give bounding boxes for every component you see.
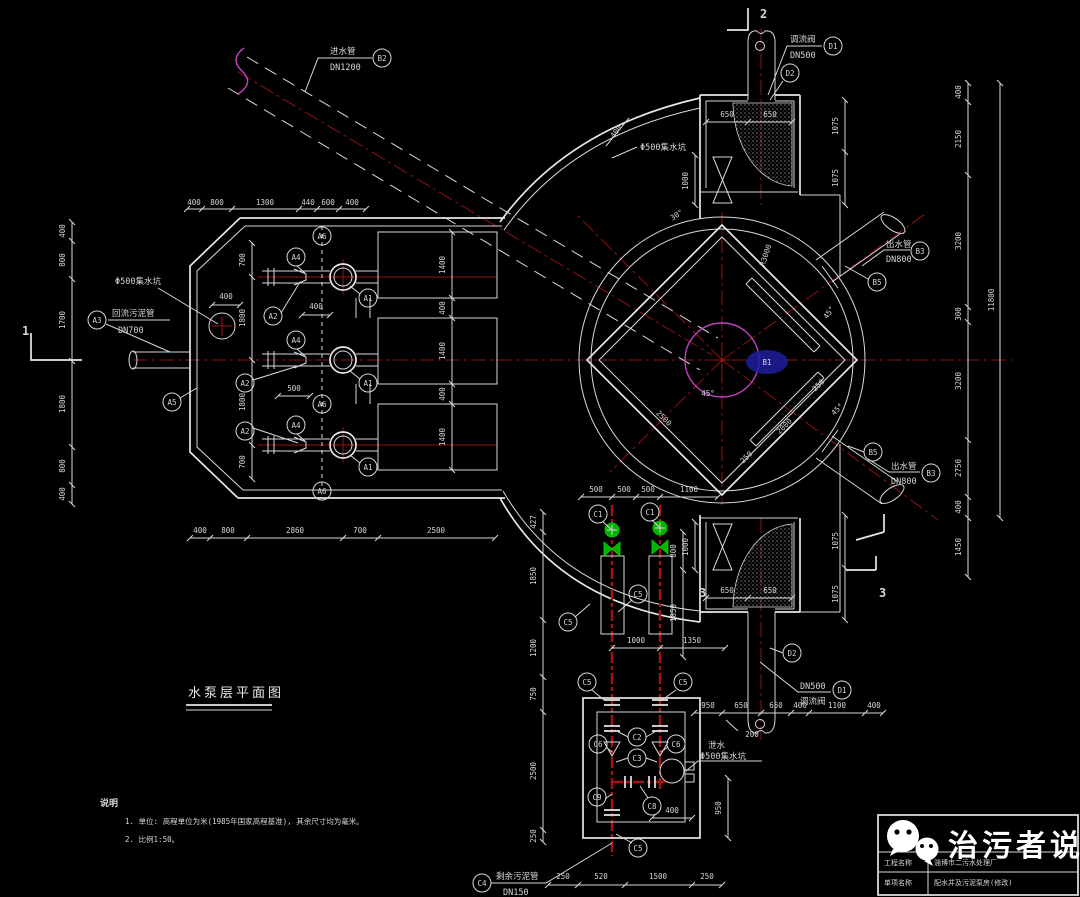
balloon-c1: C1 [589,505,607,523]
dim-label: 2860 [286,526,305,535]
svg-text:C5: C5 [678,678,687,687]
dim-label: 650 [763,110,777,119]
dim-label: 1350 [683,636,702,645]
balloon-a2: A2 [264,307,282,325]
svg-text:A2: A2 [240,379,249,388]
balloon-a2: A2 [236,374,254,392]
inlet-dn: DN1200 [330,63,361,73]
dim-label: 440 [301,198,315,207]
balloon-b3: B3 [911,242,929,260]
dim-label: 1800 [238,392,247,411]
dim-label: 650 [720,586,734,595]
dim-pit-right [725,775,731,841]
dim-label: 800 [58,459,67,473]
dim-label: 1100 [828,701,847,710]
angle-label: 30° [669,207,685,222]
balloon-c5: C5 [629,585,647,603]
dim-label: 500 [589,485,603,494]
balloon-b1: B1 [762,358,771,367]
dim-label: 650 [734,701,748,710]
dim-label: 400 [954,500,963,514]
svg-text:A4: A4 [291,253,301,262]
balloon-a4: A4 [287,331,305,349]
svg-text:B5: B5 [872,278,881,287]
outlet-label: 出水管 [886,239,912,250]
dim-label: 800 [221,526,235,535]
dim-label: 1300 [256,198,275,207]
balloon-b5: B5 [864,443,882,461]
svg-text:C1: C1 [593,510,602,519]
balloon-c5: C5 [559,613,577,631]
pit-sump [660,759,684,783]
svg-text:A3: A3 [92,316,101,325]
dim-label: 427 [529,515,538,529]
balloon-a5: A5 [163,393,181,411]
svg-text:A1: A1 [363,294,372,303]
dim-label: 250 [810,377,826,393]
svg-text:C1: C1 [645,508,654,517]
balloon-b5: B5 [868,273,886,291]
project-label: 工程名称 [884,858,912,867]
project-value: 淄博市二污水处理厂 [934,858,997,867]
sump-label: Φ500集水坑 [640,142,686,153]
surplus-sludge-label: 剩余污泥管 [496,871,539,882]
cad-drawing: 400 800 1300 440 600 400 400 800 1700 18… [0,0,1080,897]
dim-top-valve [692,152,698,208]
svg-text:C5: C5 [563,618,572,627]
balloon-a3: A3 [88,311,106,329]
balloon-a2: A2 [236,422,254,440]
dim-label: 600 [321,198,335,207]
dim-label: 2150 [954,129,963,148]
dim-label: 800 [210,198,224,207]
dim-chain-bottom [187,535,498,541]
dim-chain-bays [449,229,455,473]
drawing-title: 水泵层平面图 [188,686,284,701]
dim-chain-inner [249,240,255,482]
dim-chain-br [691,710,886,716]
leader-lines [106,46,920,883]
valve-label: 调流阀 [800,696,826,707]
dim-label: 1800 [58,394,67,413]
balloon-c8: C8 [643,797,661,815]
dim-label: 700 [353,526,367,535]
svg-text:A2: A2 [268,312,277,321]
balloon-c3: C3 [628,749,646,767]
dim-label: 1400 [438,255,447,274]
dim-label: 250 [529,829,538,843]
dim-label: 650 [763,586,777,595]
svg-text:C4: C4 [477,879,487,888]
svg-text:C9: C9 [592,793,601,802]
dim-chain-right [965,80,971,580]
svg-text:A1: A1 [363,379,372,388]
dim-grid [299,312,333,318]
butterfly-valve [713,524,732,570]
dim-label: 950 [714,801,723,815]
balloon-c5: C5 [578,673,596,691]
balloon-c5: C5 [629,839,647,857]
svg-text:A1: A1 [363,463,372,472]
dim-label: 400 [665,806,679,815]
item-value: 配水井及污泥泵房(修改) [934,878,1012,887]
valve-pit [583,698,700,838]
inlet-label: 进水管 [330,46,356,57]
svg-text:D2: D2 [787,649,796,658]
dim-label: 1000 [681,171,690,190]
pipe-labels: 进水管 DN1200 调流阀 DN500 出水管 DN800 出水管 DN800… [112,34,917,897]
dim-label: 1000 [627,636,646,645]
dim-label: 2500 [427,526,446,535]
dim-label: 400 [58,487,67,501]
section-3-label: 3 [699,586,706,600]
balloon-d1: D1 [824,37,842,55]
return-sludge-label: 回流污泥管 [112,308,155,319]
dim-label: 250 [700,872,714,881]
svg-text:A4: A4 [291,336,301,345]
dim-label: 1400 [438,427,447,446]
angle-label: 45° [701,389,715,398]
balloon-c1: C1 [641,503,659,521]
dim-label: 1400 [438,341,447,360]
surplus-sludge-dn: DN150 [503,888,529,897]
dim-label: 3200 [954,231,963,250]
watermark-titleblock: 治污者说 工程名称 淄博市二污水处理厂 单项名称 配水井及污泥泵房(修改) [878,815,1080,895]
svg-text:D2: D2 [785,69,794,78]
drain-label: 泄水 [708,740,726,751]
dim-label: 400 [193,526,207,535]
svg-text:A6: A6 [317,487,327,496]
balloon-a1: A1 [359,374,377,392]
dim-label: 1450 [954,537,963,556]
valve-dn: DN500 [800,682,826,692]
dim-label: 250 [556,872,570,881]
dim-label: 520 [594,872,608,881]
dim-top-chamber-h [842,97,848,208]
radius-label: R3000 [758,243,774,268]
svg-text:C5: C5 [582,678,591,687]
section-1-label: 1 [22,324,29,338]
dim-label: 400 [438,387,447,401]
balloon-d2: D2 [781,64,799,82]
outlet-dn: DN800 [886,255,912,265]
cad-viewport: 400 800 1300 440 600 400 400 800 1700 18… [0,0,1080,897]
balloon-a1: A1 [359,289,377,307]
svg-text:A6: A6 [317,400,327,409]
dim-label: 500 [617,485,631,494]
dim-label: 700 [238,253,247,267]
svg-text:D1: D1 [837,686,846,695]
svg-text:C8: C8 [647,802,657,811]
dim-label: 1850 [669,603,678,622]
valve-label: 调流阀 [790,34,816,45]
dim-label: 700 [238,455,247,469]
dim-label: 950 [701,701,715,710]
notes-heading: 说明 [100,797,118,809]
dim-label: 500 [641,485,655,494]
balloon-a1: A1 [359,458,377,476]
balloon-c4: C4 [473,874,491,892]
svg-text:C6: C6 [671,740,681,749]
dim-label: 2750 [954,458,963,477]
dim-label: 650 [769,701,783,710]
dim-label: 400 [867,701,881,710]
outlet-label: 出水管 [891,461,917,472]
dim-pump-gap [275,393,313,399]
item-label: 单项名称 [884,878,912,887]
dim-pit-bottom [545,882,725,888]
balloon-a4: A4 [287,248,305,266]
dim-label: 750 [529,687,538,701]
balloon-d2: D2 [783,644,801,662]
balloon-c5: C5 [674,673,692,691]
dim-label: 1075 [831,169,840,187]
dim-label: 1700 [58,310,67,329]
balloon-c6: C6 [589,735,607,753]
top-chamber [700,31,840,276]
dim-mid-bottom [609,645,728,651]
return-sludge-dn: DN700 [118,326,144,336]
dim-right-total [997,80,1003,521]
angle-label: 45° [821,304,836,320]
svg-text:A5: A5 [167,398,176,407]
dim-label: 1075 [831,117,840,135]
dim-label: 400 [58,224,67,238]
balloon-c2: C2 [628,728,646,746]
balloon-d1: D1 [833,681,851,699]
section-labels: 2 1 3 3 [22,7,886,600]
dim-label: 1850 [529,566,538,585]
dim-label: 1100 [680,485,699,494]
dim-mid-top [578,494,721,500]
dim-sump [209,302,243,308]
dim-label: 400 [608,123,623,140]
dim-label: 11800 [987,288,996,311]
section-3-label: 3 [879,586,886,600]
dim-label: 1075 [831,585,840,603]
svg-text:C5: C5 [633,844,642,853]
balloon-c6: C6 [667,735,685,753]
dim-label: 1800 [238,308,247,327]
dim-label: 650 [720,110,734,119]
dim-label: 400 [309,302,323,311]
dim-pit-inner [649,815,695,821]
svg-text:B3: B3 [915,247,924,256]
dim-label: 300 [954,307,963,321]
dim-label: 1075 [831,532,840,550]
sump-label: Φ500集水坑 [115,276,161,287]
svg-text:C3: C3 [632,754,641,763]
angle-label: 45° [829,401,845,417]
dim-label: 500 [287,384,301,393]
svg-text:B1: B1 [762,358,771,367]
weir-slot-ne [746,278,820,352]
svg-text:A6: A6 [317,232,327,241]
note-2: 2. 比例1:50。 [125,834,179,844]
svg-text:B5: B5 [868,448,877,457]
dim-chain-left [69,219,75,507]
dim-label: 3200 [954,371,963,390]
dimension-labels: 400 800 1300 440 600 400 400 800 1700 18… [58,85,996,881]
sump-label: Φ500集水坑 [700,751,746,762]
svg-text:B3: B3 [926,469,935,478]
svg-text:A4: A4 [291,421,301,430]
section-2-label: 2 [760,7,767,21]
butterfly-valve [713,157,732,203]
dim-bot-valve [692,519,698,573]
svg-text:D1: D1 [828,42,837,51]
balloon-a4: A4 [287,416,305,434]
centerlines [133,28,1012,740]
svg-text:A2: A2 [240,427,249,436]
dim-label: 250 [738,449,754,465]
dim-label: 1000 [681,537,690,556]
dim-label: 200 [745,730,759,739]
dim-label: 800 [58,253,67,267]
svg-text:B2: B2 [377,54,386,63]
dim-label: 400 [954,85,963,99]
dim-bot-chamber-h [842,512,848,623]
dim-mid-left [540,509,546,845]
pump-house [129,218,505,498]
pipe-break-symbol [236,48,248,94]
dim-label: 400 [219,292,233,301]
note-1: 1. 单位: 高程单位为米(1985年国家高程基准), 其余尺寸均为毫米。 [125,816,364,826]
sludge-valve-lines [601,505,672,856]
dim-label: 400 [187,198,201,207]
dim-label: 400 [345,198,359,207]
balloon-b2: B2 [373,49,391,67]
drawing-title-block: 水泵层平面图 说明 1. 单位: 高程单位为米(1985年国家高程基准), 其余… [100,686,364,844]
dim-label: 400 [438,301,447,315]
outlet-dn: DN800 [891,477,917,487]
svg-text:C2: C2 [632,733,641,742]
dim-label: 1200 [529,638,538,657]
valve-dn: DN500 [790,51,816,61]
dim-label: 800 [669,544,678,558]
svg-text:C5: C5 [633,590,642,599]
svg-text:C6: C6 [593,740,603,749]
balloon-b3: B3 [922,464,940,482]
dim-label: 1500 [649,872,668,881]
dim-label: 2500 [529,761,538,780]
